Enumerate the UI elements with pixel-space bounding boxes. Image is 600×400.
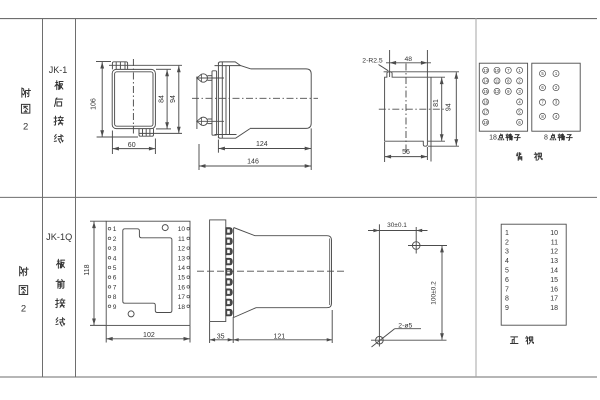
svg-text:81: 81 bbox=[433, 99, 440, 107]
svg-text:13: 13 bbox=[178, 255, 186, 262]
svg-text:2-R2.5: 2-R2.5 bbox=[362, 58, 383, 65]
svg-text:14: 14 bbox=[178, 265, 186, 272]
svg-text:13: 13 bbox=[483, 68, 488, 73]
svg-text:12: 12 bbox=[178, 246, 186, 253]
svg-text:16: 16 bbox=[483, 99, 488, 104]
svg-text:5: 5 bbox=[505, 268, 509, 275]
svg-text:15: 15 bbox=[483, 89, 488, 94]
svg-text:124: 124 bbox=[256, 141, 268, 148]
svg-text:2: 2 bbox=[23, 122, 28, 133]
svg-text:5: 5 bbox=[113, 265, 117, 272]
svg-text:JK-1Q: JK-1Q bbox=[46, 232, 72, 242]
svg-text:15: 15 bbox=[178, 275, 186, 282]
svg-text:11: 11 bbox=[495, 78, 500, 83]
svg-text:48: 48 bbox=[405, 56, 413, 63]
svg-text:118: 118 bbox=[84, 264, 91, 275]
svg-text:13: 13 bbox=[550, 258, 558, 265]
svg-text:2: 2 bbox=[21, 304, 26, 315]
svg-text:14: 14 bbox=[550, 268, 558, 275]
svg-text:15: 15 bbox=[550, 277, 558, 284]
svg-text:18: 18 bbox=[178, 304, 186, 311]
svg-text:60: 60 bbox=[128, 142, 136, 149]
svg-text:18: 18 bbox=[550, 305, 558, 312]
svg-text:94: 94 bbox=[170, 95, 177, 103]
svg-text:2: 2 bbox=[505, 239, 509, 246]
svg-text:10: 10 bbox=[178, 226, 186, 233]
svg-text:16: 16 bbox=[550, 286, 558, 293]
svg-text:1: 1 bbox=[505, 230, 509, 237]
svg-text:16: 16 bbox=[178, 284, 186, 291]
svg-text:2: 2 bbox=[113, 236, 117, 243]
svg-text:17: 17 bbox=[483, 109, 488, 114]
svg-text:94: 94 bbox=[446, 103, 453, 111]
svg-text:3: 3 bbox=[113, 246, 117, 253]
svg-text:7: 7 bbox=[505, 286, 509, 293]
svg-text:2-ø5: 2-ø5 bbox=[398, 323, 412, 330]
svg-text:84: 84 bbox=[158, 95, 165, 103]
svg-text:102: 102 bbox=[143, 332, 155, 339]
svg-text:6: 6 bbox=[505, 277, 509, 284]
svg-text:18: 18 bbox=[483, 120, 488, 125]
svg-text:10: 10 bbox=[495, 68, 500, 73]
svg-text:17: 17 bbox=[178, 294, 186, 301]
svg-text:17: 17 bbox=[550, 296, 558, 303]
svg-text:1: 1 bbox=[113, 226, 117, 233]
svg-text:14: 14 bbox=[483, 78, 488, 83]
svg-text:106: 106 bbox=[91, 98, 98, 110]
svg-text:8: 8 bbox=[113, 294, 117, 301]
svg-text:9: 9 bbox=[505, 305, 509, 312]
svg-text:12: 12 bbox=[550, 249, 558, 256]
svg-text:146: 146 bbox=[247, 158, 259, 165]
svg-text:11: 11 bbox=[551, 239, 558, 246]
svg-text:12: 12 bbox=[495, 89, 500, 94]
svg-text:3: 3 bbox=[505, 249, 509, 256]
svg-text:9: 9 bbox=[113, 304, 117, 311]
svg-text:56: 56 bbox=[402, 149, 410, 156]
svg-text:4: 4 bbox=[505, 258, 509, 265]
svg-text:8: 8 bbox=[544, 135, 548, 142]
svg-text:121: 121 bbox=[273, 333, 285, 340]
svg-text:6: 6 bbox=[113, 275, 117, 282]
svg-text:7: 7 bbox=[113, 284, 117, 291]
svg-text:4: 4 bbox=[113, 255, 117, 262]
svg-text:10: 10 bbox=[550, 230, 558, 237]
svg-text:35: 35 bbox=[217, 333, 225, 340]
svg-text:100±0.2: 100±0.2 bbox=[431, 281, 438, 305]
svg-text:18: 18 bbox=[489, 135, 497, 142]
svg-text:8: 8 bbox=[505, 296, 509, 303]
svg-text:11: 11 bbox=[178, 236, 185, 243]
svg-text:30±0.1: 30±0.1 bbox=[387, 222, 407, 229]
svg-text:JK-1: JK-1 bbox=[49, 65, 68, 75]
